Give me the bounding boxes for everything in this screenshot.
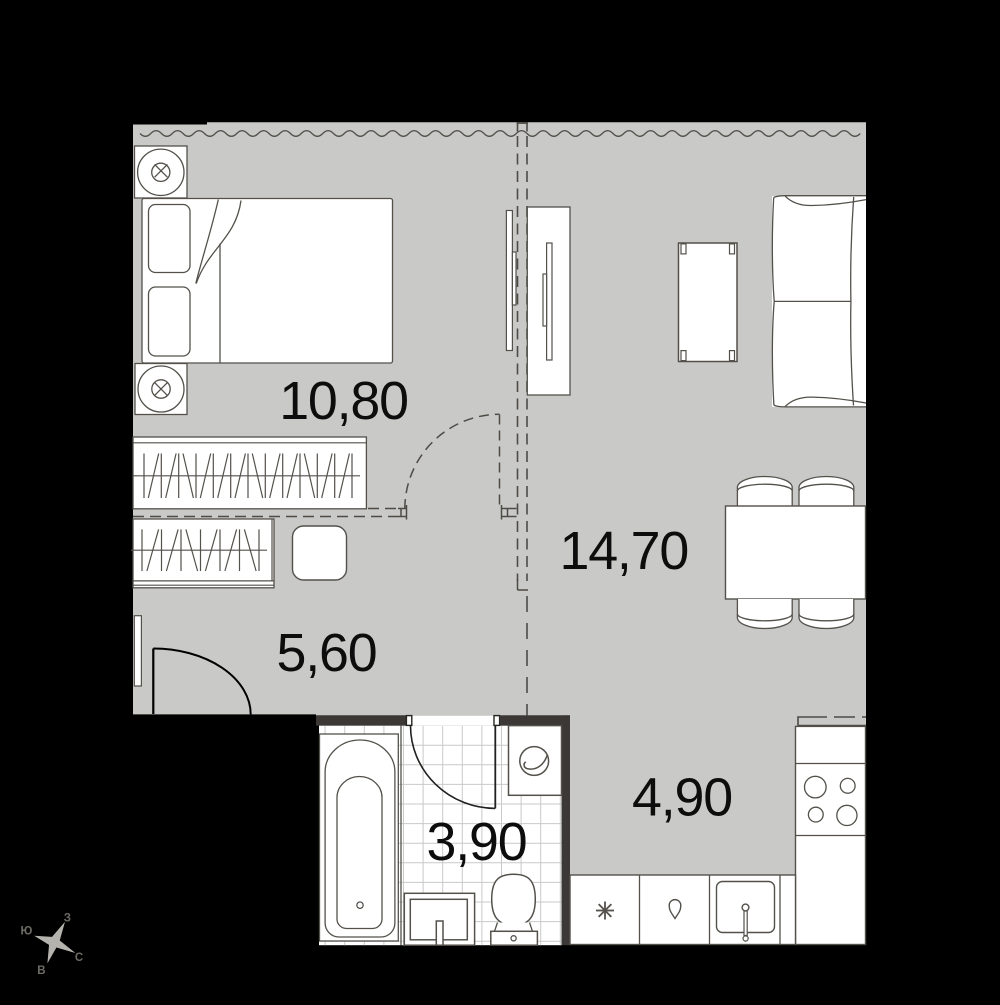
svg-text:С: С [75,952,83,964]
svg-text:З: З [64,912,71,924]
svg-text:5,60: 5,60 [277,623,377,683]
svg-text:Ю: Ю [20,926,32,938]
svg-text:3,90: 3,90 [427,812,527,872]
svg-text:14,70: 14,70 [559,521,688,581]
svg-text:В: В [37,965,45,977]
svg-text:10,80: 10,80 [279,371,408,431]
svg-text:4,90: 4,90 [632,768,732,828]
